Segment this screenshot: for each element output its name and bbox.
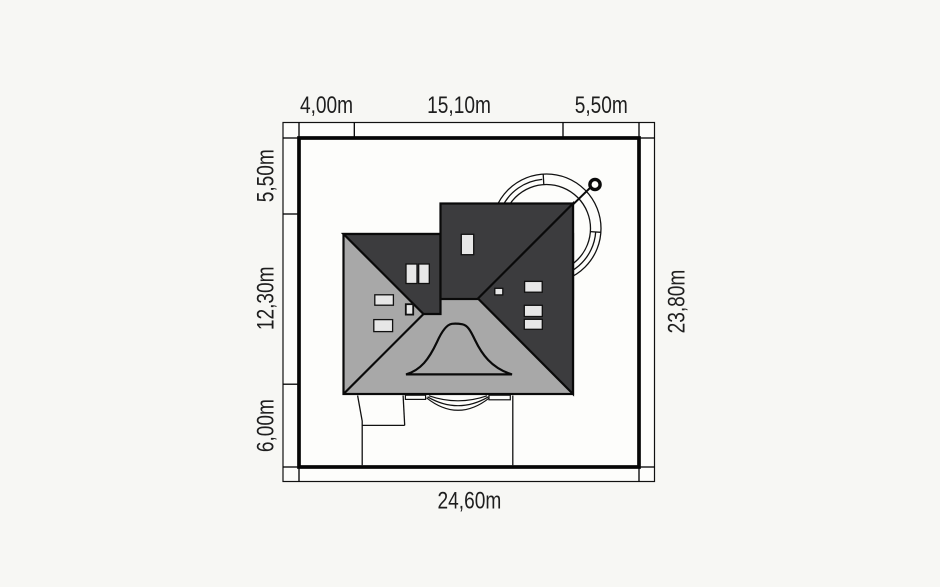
svg-text:15,10m: 15,10m [427,91,491,119]
svg-text:5,50m: 5,50m [251,149,279,202]
svg-text:23,80m: 23,80m [662,270,690,334]
svg-text:12,30m: 12,30m [251,266,279,330]
svg-text:4,00m: 4,00m [300,91,353,119]
svg-text:5,50m: 5,50m [575,91,628,119]
svg-text:24,60m: 24,60m [438,486,502,514]
svg-text:6,00m: 6,00m [251,399,279,452]
